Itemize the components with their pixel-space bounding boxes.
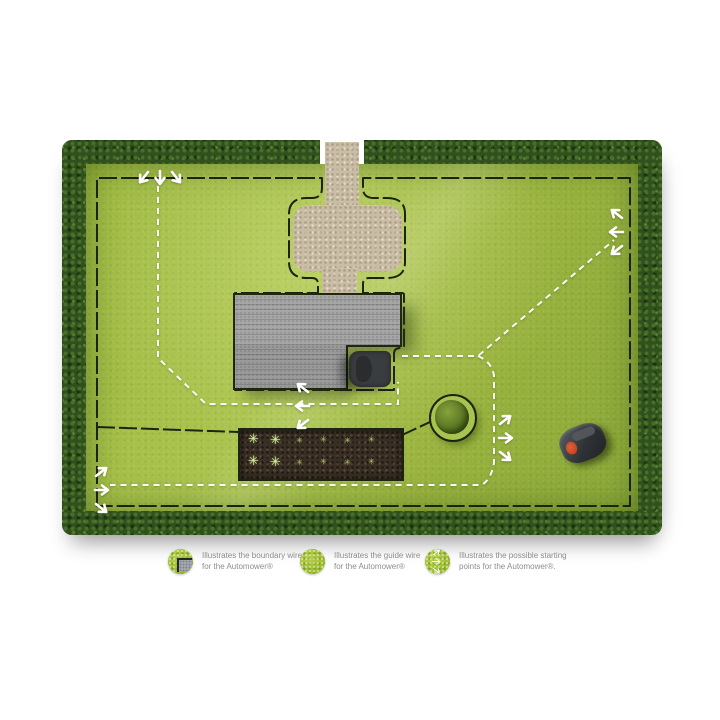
guide-wire-west	[158, 186, 398, 404]
legend-item-starting-points: Illustrates the possible starting points…	[425, 549, 567, 574]
hedge: ✳ ✳ ✳ ✳ ✳ ✳ ✳ ✳ ✳ ✳ ✳ ✳	[62, 140, 662, 535]
starting-points-arrows-glyph	[425, 549, 450, 574]
boundary-wire-legend-icon	[168, 549, 193, 574]
starting-point-arrows-below-house	[295, 380, 311, 431]
legend-item-boundary-wire: Illustrates the boundary wire for the Au…	[168, 549, 302, 574]
legend-label: Illustrates the guide wire for the Autom…	[334, 551, 420, 573]
legend-item-guide-wire: Illustrates the guide wire for the Autom…	[300, 549, 420, 574]
guide-wire-and-arrows	[62, 140, 662, 535]
starting-point-arrows-top-right	[609, 206, 625, 257]
starting-point-arrows-mid-right	[497, 412, 513, 463]
starting-point-arrows-bottom-left	[93, 464, 109, 515]
starting-points-legend-icon	[425, 549, 450, 574]
automower-garden-diagram: ✳ ✳ ✳ ✳ ✳ ✳ ✳ ✳ ✳ ✳ ✳ ✳	[0, 0, 720, 720]
guide-wire-legend-icon	[300, 549, 325, 574]
guide-wire-south	[110, 356, 494, 485]
grass-texture	[300, 549, 325, 574]
starting-point-arrows-top-left	[136, 169, 183, 185]
guide-wire-northeast	[402, 240, 614, 356]
legend-label: Illustrates the possible starting points…	[459, 551, 567, 573]
legend-label: Illustrates the boundary wire for the Au…	[202, 551, 302, 573]
boundary-corner-glyph	[177, 558, 192, 572]
